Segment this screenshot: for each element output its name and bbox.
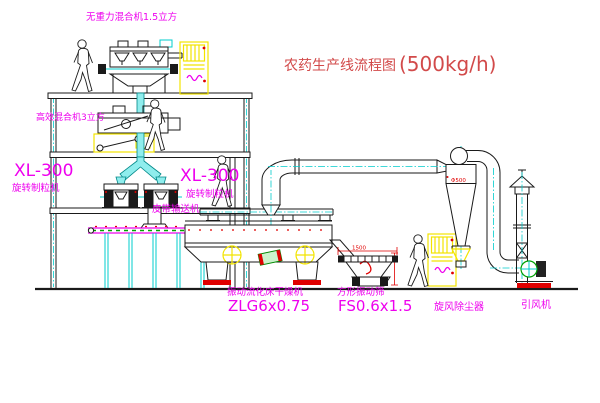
sieve-spring <box>360 261 371 274</box>
dryer-discharge-chute <box>330 240 354 256</box>
control-cabinet-top <box>180 42 208 94</box>
square-vibrating-sieve <box>338 247 398 286</box>
diagram-title: 农药生产线流程图 <box>284 58 396 74</box>
granulator-name-right: 旋转制粒机 <box>186 188 234 200</box>
mixer-discharge <box>133 86 147 93</box>
worker-figure-ground <box>408 235 429 287</box>
dryer-feet <box>203 262 321 285</box>
high-eff-mixer-label: 高效混合机3立方 <box>36 111 105 123</box>
drawing-canvas: 无重力混合机1.5立方 农药生产线流程图 (500kg/h) 高效混合机3立方 … <box>0 0 600 403</box>
granulator-model-right: XL-300 <box>180 166 239 186</box>
diagram-title-capacity: (500kg/h) <box>399 52 496 76</box>
y-splitter-pipe <box>120 157 161 180</box>
cyclone-dim-label: Φ500 <box>451 178 466 184</box>
rotary-granulator-left <box>100 177 142 208</box>
dryer-model-label: ZLG6x0.75 <box>228 297 310 315</box>
roof-beam <box>48 93 252 99</box>
control-cabinet-right <box>428 234 456 286</box>
induced-draft-fan <box>515 261 553 288</box>
rotary-granulator-right <box>140 177 182 208</box>
granulator-model-left: XL-300 <box>14 161 73 181</box>
gravity-free-mixer <box>98 40 182 93</box>
sieve-dim-label: 1500 <box>352 246 366 252</box>
feed-pipe-2 <box>137 133 144 157</box>
cyclone-dust-collector <box>446 146 476 270</box>
belt-conveyor-label: 皮带输送机 <box>152 203 200 215</box>
fan-label: 引风机 <box>521 298 551 311</box>
cad-flow-diagram: 无重力混合机1.5立方 农药生产线流程图 (500kg/h) 高效混合机3立方 … <box>0 0 600 403</box>
worker-figure-roof <box>72 40 93 92</box>
granulator-name-left: 旋转制粒机 <box>12 182 60 194</box>
fluid-bed-dryer <box>185 221 354 285</box>
gravity-mixer-label: 无重力混合机1.5立方 <box>86 11 177 23</box>
sieve-model-label: FS0.6x1.5 <box>338 297 412 315</box>
cyclone-label: 旋风除尘器 <box>434 300 484 313</box>
labels: 无重力混合机1.5立方 农药生产线流程图 (500kg/h) 高效混合机3立方 … <box>12 11 551 315</box>
exhaust-duct <box>466 151 545 274</box>
